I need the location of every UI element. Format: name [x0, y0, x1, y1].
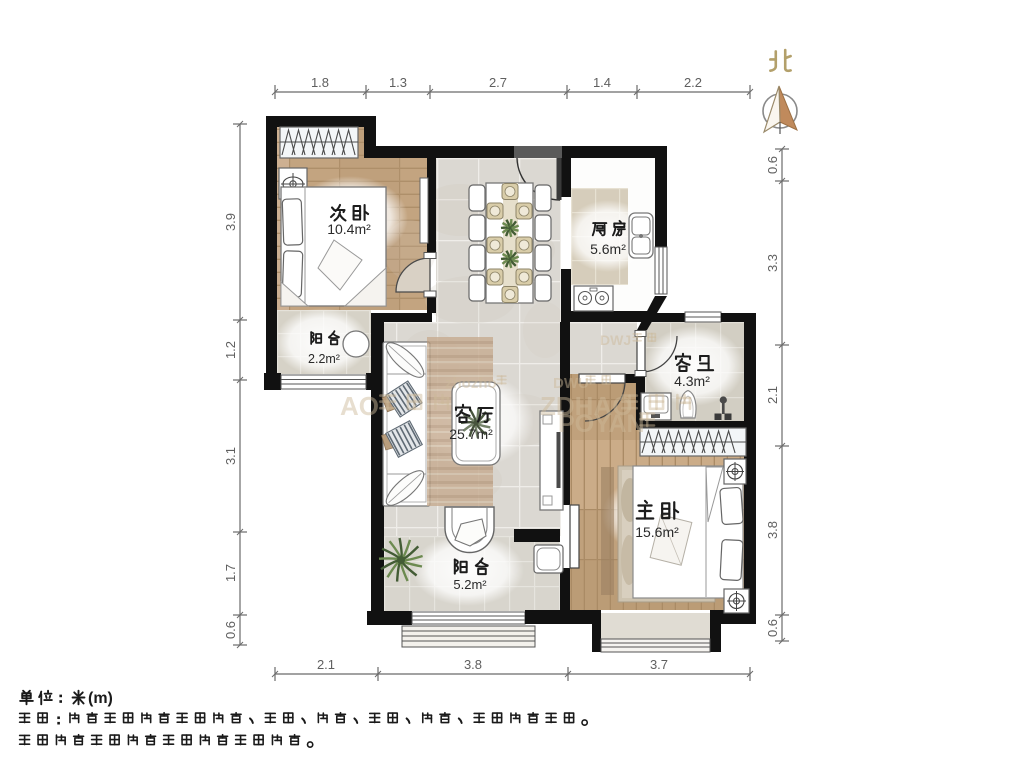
- svg-text:(m): (m): [88, 690, 113, 707]
- svg-text:1.4: 1.4: [593, 75, 611, 90]
- svg-text:0.6: 0.6: [223, 621, 238, 639]
- svg-text:2.7: 2.7: [489, 75, 507, 90]
- svg-text:15.6m²: 15.6m²: [635, 524, 679, 540]
- svg-text:1.3: 1.3: [389, 75, 407, 90]
- svg-text:AO: AO: [340, 391, 379, 421]
- svg-text:3.8: 3.8: [464, 657, 482, 672]
- svg-text:25.7m²: 25.7m²: [449, 426, 493, 442]
- svg-text:0.6: 0.6: [765, 156, 780, 174]
- svg-text:5.2m²: 5.2m²: [453, 577, 487, 592]
- svg-text:1.8: 1.8: [311, 75, 329, 90]
- svg-text:10.4m²: 10.4m²: [327, 221, 371, 237]
- svg-text:zhozho: zhozho: [445, 375, 497, 392]
- svg-text:1.7: 1.7: [223, 564, 238, 582]
- svg-text:2.1: 2.1: [765, 386, 780, 404]
- svg-text:1.2: 1.2: [223, 341, 238, 359]
- svg-text:3.7: 3.7: [650, 657, 668, 672]
- svg-text:3.9: 3.9: [223, 213, 238, 231]
- svg-text:3.8: 3.8: [765, 521, 780, 539]
- svg-text:3.1: 3.1: [223, 447, 238, 465]
- svg-text:4.3m²: 4.3m²: [674, 373, 710, 389]
- svg-text:DWU: DWU: [553, 375, 589, 392]
- svg-text:DWJ: DWJ: [600, 332, 631, 348]
- svg-text:2.1: 2.1: [317, 657, 335, 672]
- svg-text:0.6: 0.6: [765, 619, 780, 637]
- svg-text:POYAN: POYAN: [558, 410, 645, 438]
- svg-text:3.3: 3.3: [765, 254, 780, 272]
- svg-text:5.6m²: 5.6m²: [590, 241, 626, 257]
- svg-text:2.2m²: 2.2m²: [308, 352, 340, 366]
- svg-text:2.2: 2.2: [684, 75, 702, 90]
